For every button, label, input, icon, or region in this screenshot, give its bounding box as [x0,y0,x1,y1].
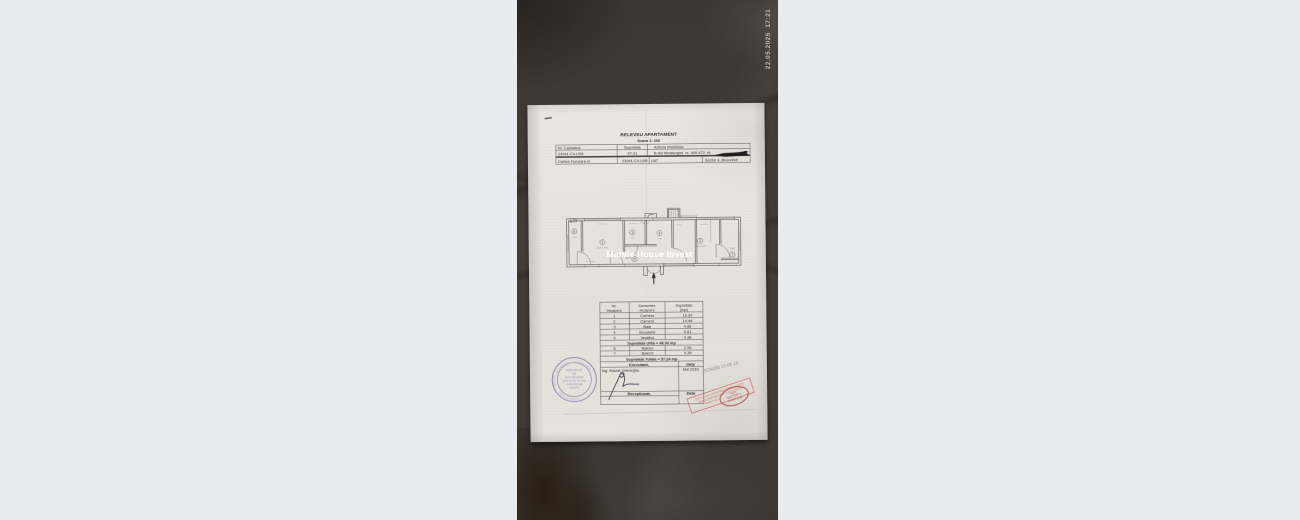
svg-text:23941-C4-U58: 23941-C4-U58 [622,158,648,163]
svg-text:19.39: 19.39 [683,313,693,318]
svg-text:7: 7 [614,351,616,356]
svg-text:6: 6 [573,230,575,234]
svg-text:7: 7 [731,253,733,257]
svg-text:4: 4 [613,330,616,335]
svg-text:1/24038 10.05.16: 1/24038 10.05.16 [703,360,739,373]
svg-text:Mai 2016: Mai 2016 [683,367,699,372]
svg-text:Adresa imobilului: Adresa imobilului [654,144,684,149]
svg-text:Baie: Baie [643,324,651,329]
svg-text:3: 3 [613,324,615,329]
svg-text:Balcon: Balcon [642,351,654,356]
svg-text:4: 4 [659,231,661,235]
svg-text:Sector 4, Bucuresti: Sector 4, Bucuresti [705,157,738,162]
svg-text:B-dul Metalurgiei, nr. 446-47: B-dul Metalurgiei, nr. 446-472, bl. [654,150,711,156]
svg-text:1: 1 [613,314,615,319]
svg-text:57.31: 57.31 [627,151,637,156]
svg-text:1.10: 1.10 [572,237,577,239]
svg-text:(mp): (mp) [680,307,689,312]
svg-text:4.38: 4.38 [684,334,692,339]
svg-text:Incapere: Incapere [640,307,655,312]
svg-text:3: 3 [631,231,633,235]
svg-text:Incapere: Incapere [607,308,622,313]
svg-text:MAZAT: MAZAT [570,386,580,390]
svg-text:5: 5 [614,335,616,340]
svg-text:Nr. Cadastral: Nr. Cadastral [558,145,581,150]
svg-text:Camera: Camera [640,313,655,318]
svg-text:AUTORIZARE: AUTORIZARE [565,375,584,379]
svg-text:Data: Data [687,391,696,396]
svg-text:UAT: UAT [651,158,659,163]
svg-text:Cartea Funciara nr.: Cartea Funciara nr. [558,158,591,163]
svg-text:5.81: 5.81 [684,329,692,334]
svg-text:5.39: 5.39 [684,350,692,355]
svg-text:Receptionat,: Receptionat, [627,391,650,396]
svg-text:Suprafata Totala = 57.24 mp: Suprafata Totala = 57.24 mp [626,356,678,361]
svg-text:Suprafata: Suprafata [624,144,642,149]
svg-text:ing. Mazat Gheorghe: ing. Mazat Gheorghe [602,367,640,372]
svg-text:4.86: 4.86 [684,323,692,328]
svg-text:2: 2 [699,239,701,243]
svg-text:0.95: 0.95 [730,248,735,250]
svg-text:Scara 1: 100: Scara 1: 100 [637,138,660,143]
svg-text:4.46 x 3.82: 4.46 x 3.82 [695,246,707,248]
svg-text:Vestibul: Vestibul [641,335,655,340]
svg-text:23941-C4-U58: 23941-C4-U58 [558,151,584,156]
svg-text:1: 1 [601,241,603,245]
svg-text:2.60: 2.60 [657,238,662,240]
svg-text:2.10: 2.10 [630,238,635,240]
svg-text:Executant,: Executant, [629,362,649,367]
svg-text:Bucatarie: Bucatarie [639,329,655,334]
